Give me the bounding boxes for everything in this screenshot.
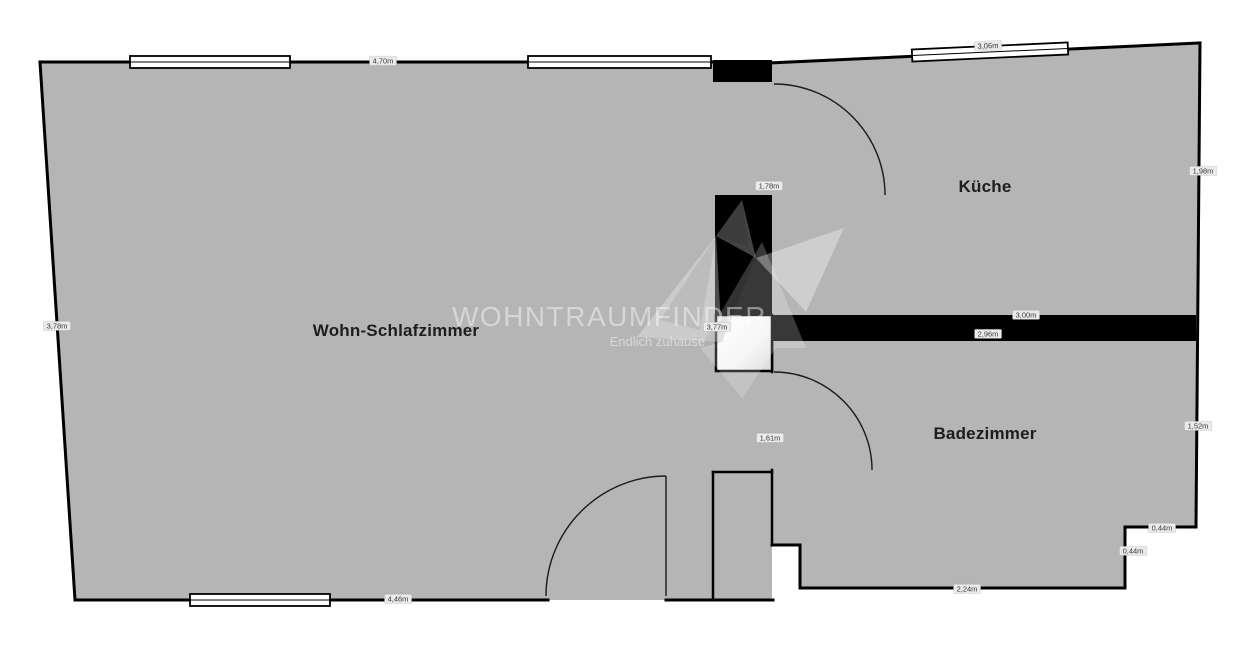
room-label-badezimmer: Badezimmer	[933, 424, 1036, 444]
room-label-wohn-schlafzimmer: Wohn-Schlafzimmer	[313, 321, 480, 341]
dimension-label-left-wall: 3,78m	[44, 321, 71, 330]
window-bottom	[190, 594, 330, 606]
floorplan: WOHNTRAUMFINDER Endlich zuhause Wohn-Sch…	[0, 0, 1250, 649]
window-top-mid	[528, 56, 711, 68]
dimension-label-kitchen-right: 1,98m	[1190, 166, 1217, 175]
window-top-left	[130, 56, 290, 68]
dimension-label-bath-right: 1,52m	[1185, 421, 1212, 430]
dimension-label-divider-bottom: 2,96m	[975, 329, 1002, 338]
dimension-label-corridor: 1,61m	[757, 433, 784, 442]
dimension-label-bottom-left: 4,46m	[385, 594, 412, 603]
dimension-label-top-left: 4,70m	[370, 56, 397, 65]
dimension-label-divider-top: 3,00m	[1013, 310, 1040, 319]
wall-block-top	[713, 60, 772, 82]
dimension-label-bath-bottom: 2,24m	[954, 584, 981, 593]
dimension-label-living-height: 3,77m	[704, 322, 731, 331]
dimension-label-step-h: 0,44m	[1149, 523, 1176, 532]
room-label-kueche: Küche	[959, 177, 1012, 197]
dimension-label-kitchen-top: 3,06m	[974, 41, 1001, 52]
dimension-label-kitchen-left: 1,78m	[756, 181, 783, 190]
watermark-tagline: Endlich zuhause	[545, 334, 705, 349]
dimension-label-step-v: 0,44m	[1120, 546, 1147, 555]
